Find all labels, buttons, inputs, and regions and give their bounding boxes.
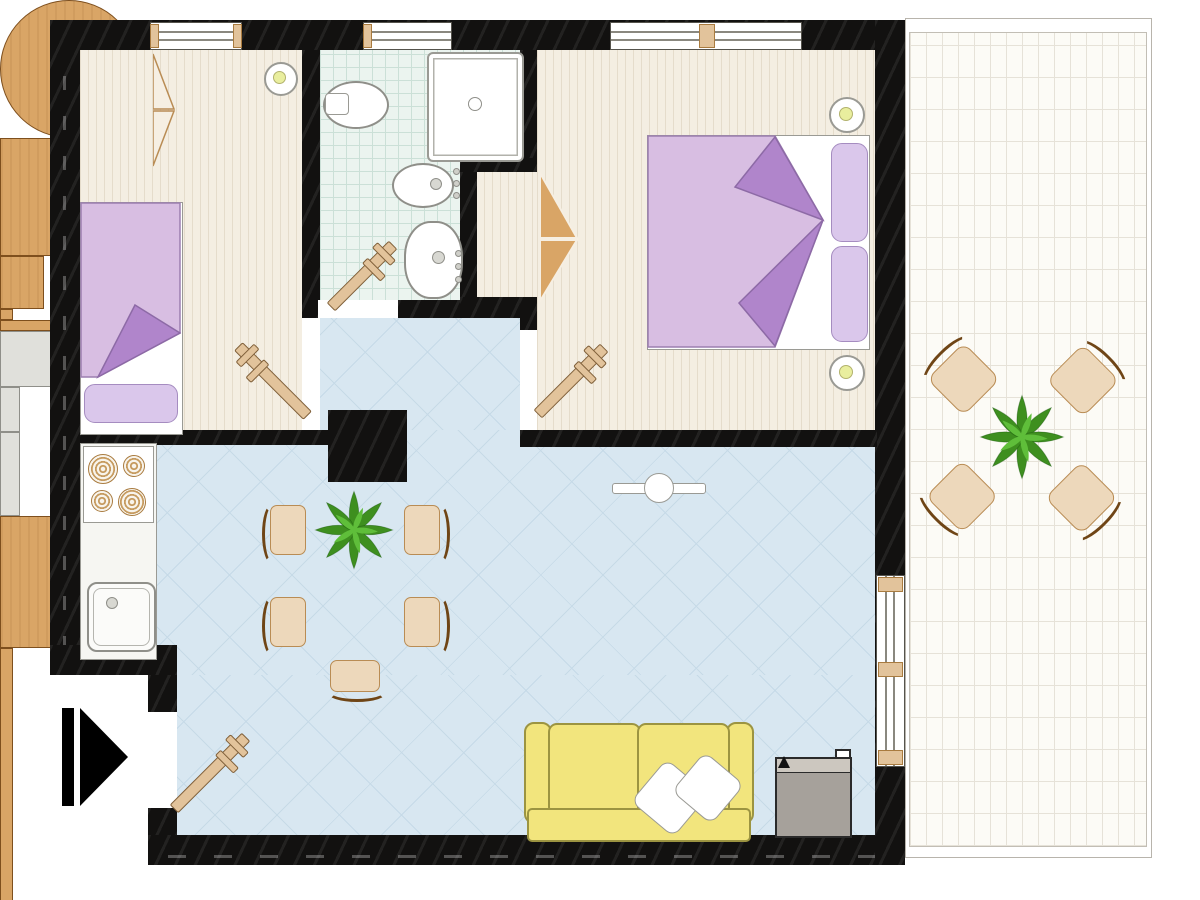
door-handle bbox=[583, 345, 607, 369]
living-room-floor bbox=[80, 430, 877, 675]
terrace-glass-door bbox=[876, 575, 905, 767]
window-frame-line bbox=[151, 31, 241, 33]
plant-icon bbox=[312, 488, 396, 572]
window-bedroom bbox=[150, 22, 242, 50]
stove-burner bbox=[88, 454, 118, 484]
lamp-bulb bbox=[273, 71, 286, 84]
chair-seat bbox=[270, 597, 306, 647]
dining-chair bbox=[326, 660, 384, 702]
tv-power-arrow-icon bbox=[778, 756, 790, 768]
chair-seat bbox=[404, 505, 440, 555]
lamp-bulb bbox=[839, 365, 853, 379]
window-sill-block bbox=[363, 24, 372, 48]
fixture-detail bbox=[453, 192, 460, 199]
dining-chair bbox=[404, 502, 446, 560]
washbasin-base bbox=[0, 432, 20, 516]
wall-bottom bbox=[148, 835, 905, 865]
fixture-detail bbox=[455, 250, 462, 257]
dining-chair bbox=[262, 594, 304, 652]
window-sill-block bbox=[150, 24, 159, 48]
chair-back bbox=[327, 682, 387, 702]
tv bbox=[775, 757, 852, 838]
shower-drain bbox=[468, 97, 482, 111]
chair-seat bbox=[270, 505, 306, 555]
fixture-detail bbox=[455, 263, 462, 270]
sofa-seat-cushion bbox=[548, 723, 641, 816]
window-frame-line bbox=[151, 39, 241, 41]
window-master-bedroom bbox=[610, 22, 802, 50]
door-frame-block bbox=[878, 750, 903, 765]
lamp-bulb bbox=[839, 107, 853, 121]
window-mullion bbox=[699, 24, 715, 48]
master-wardrobe-open-doors bbox=[540, 172, 580, 302]
chair-seat bbox=[404, 597, 440, 647]
bedside-lamp-table bbox=[0, 256, 44, 309]
bidet-icon bbox=[392, 163, 454, 208]
wall-marking bbox=[168, 855, 878, 858]
dining-chair bbox=[404, 594, 446, 652]
wall-nook-left bbox=[460, 172, 477, 310]
bidet-faucet bbox=[430, 178, 442, 190]
master-door-opening bbox=[520, 330, 537, 430]
wall-entry-upper bbox=[148, 675, 177, 712]
fixture-detail bbox=[453, 168, 460, 175]
door-handle bbox=[225, 734, 249, 758]
plant-icon bbox=[977, 392, 1067, 482]
sink-drain bbox=[106, 597, 118, 609]
stove-burner bbox=[118, 488, 146, 516]
dining-chair bbox=[262, 502, 304, 560]
toilet-tank bbox=[325, 93, 349, 115]
wardrobe-open-doors bbox=[153, 52, 177, 168]
floor-plan bbox=[0, 0, 1200, 900]
entrance-marker-bar bbox=[62, 708, 74, 806]
wall-pillar bbox=[328, 410, 407, 482]
bed-pillow bbox=[831, 143, 868, 242]
wall-left bbox=[50, 20, 80, 675]
wall-bedroom-bathroom bbox=[302, 50, 320, 318]
wall-master-living bbox=[520, 430, 877, 447]
window-frame-line bbox=[364, 39, 451, 41]
entrance-arrow-icon bbox=[80, 708, 128, 806]
bed-pillow bbox=[84, 384, 178, 423]
wall-master-door-jamb bbox=[520, 297, 537, 330]
stove-burner bbox=[91, 490, 113, 512]
lamp-table-stub bbox=[0, 309, 13, 320]
window-frame-line bbox=[364, 31, 451, 33]
door-handle bbox=[372, 242, 396, 266]
door-handle bbox=[236, 344, 260, 368]
kitchen-sink bbox=[87, 582, 156, 652]
sink-basin bbox=[93, 588, 150, 646]
door-frame-block bbox=[878, 577, 903, 592]
window-bathroom bbox=[363, 22, 452, 50]
bidet-base bbox=[0, 387, 20, 432]
door-frame-block bbox=[878, 662, 903, 677]
stove-burner bbox=[123, 455, 145, 477]
window-sill-block bbox=[233, 24, 242, 48]
fixture-detail bbox=[455, 276, 462, 283]
wall-marking bbox=[63, 50, 66, 650]
fixture-detail bbox=[453, 180, 460, 187]
washbasin-faucet bbox=[432, 251, 445, 264]
sideboard-handle-knob bbox=[644, 473, 674, 503]
entrance-door-opening bbox=[148, 712, 177, 808]
bed-pillow bbox=[831, 246, 868, 342]
bed-headboard bbox=[0, 648, 13, 900]
